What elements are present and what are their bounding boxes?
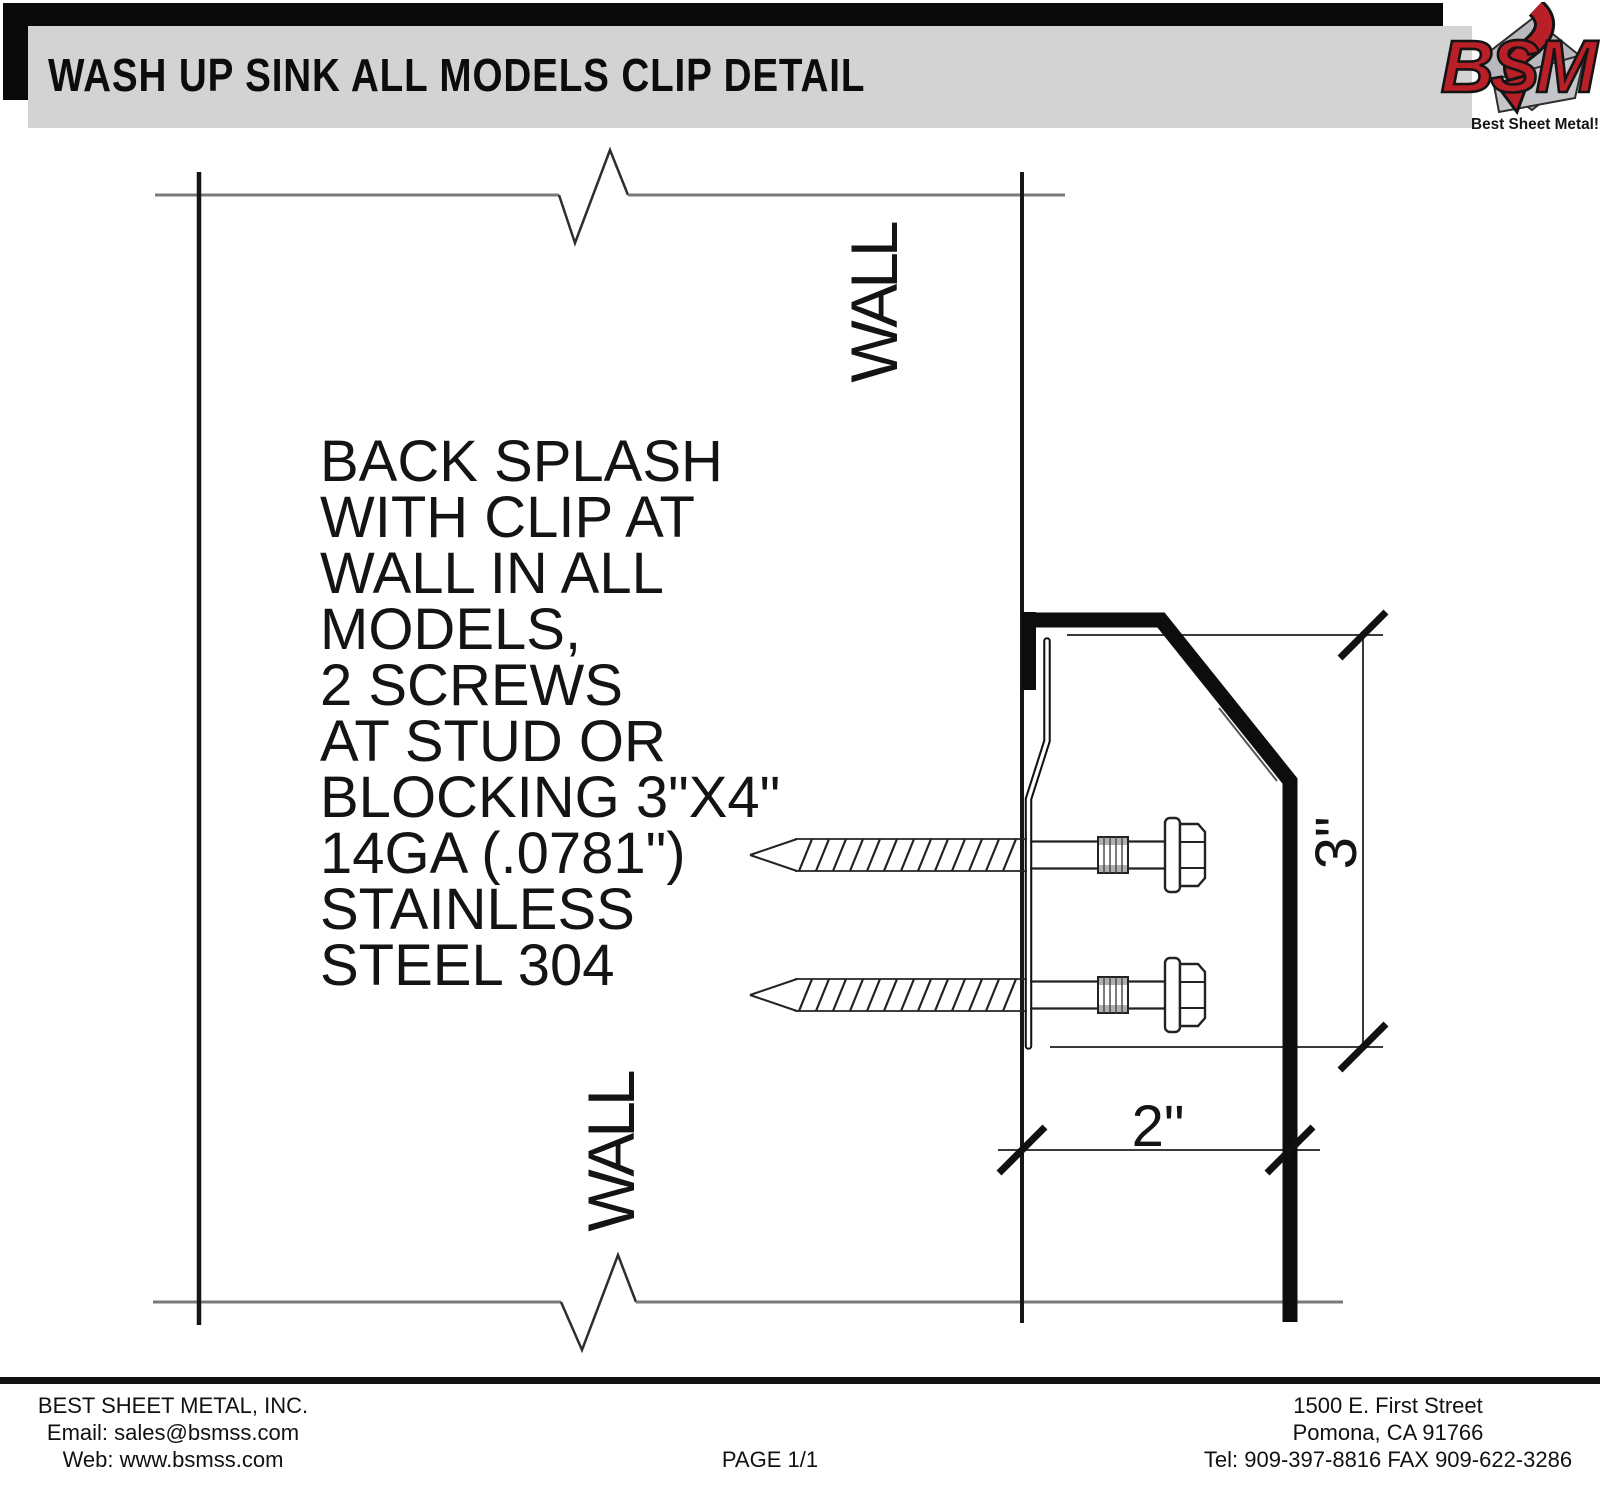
dimension-ticks: [999, 612, 1386, 1173]
logo-tagline: Best Sheet Metal!: [1471, 116, 1599, 133]
company-email: Email: sales@bsmss.com: [0, 1419, 346, 1446]
mounting-clip: [1029, 641, 1048, 1046]
header-title-bar: WASH UP SINK ALL MODELS CLIP DETAIL: [28, 26, 1472, 128]
address-street: 1500 E. First Street: [1188, 1392, 1588, 1419]
wall-label-top: WALL: [837, 222, 911, 383]
footer-rule: [0, 1377, 1600, 1384]
wall-break-line-top: [155, 150, 1065, 243]
dimension-height-label: 3": [1304, 817, 1369, 870]
address-city: Pomona, CA 91766: [1188, 1419, 1588, 1446]
logo-acronym: BSM: [1441, 25, 1599, 108]
backsplash-profile: [1022, 620, 1290, 1322]
company-name: BEST SHEET METAL, INC.: [0, 1392, 346, 1419]
phone-fax: Tel: 909-397-8816 FAX 909-622-3286: [1188, 1446, 1588, 1473]
annotation-note: BACK SPLASH WITH CLIP AT WALL IN ALL MOD…: [320, 434, 880, 994]
wall-break-line-bottom: [153, 1255, 1343, 1350]
footer-company-block: BEST SHEET METAL, INC. Email: sales@bsms…: [0, 1392, 346, 1473]
footer-address-block: 1500 E. First Street Pomona, CA 91766 Te…: [1188, 1392, 1588, 1473]
dimension-lines: [998, 635, 1383, 1150]
page-number: PAGE 1/1: [690, 1446, 850, 1473]
drawing-sheet: WASH UP SINK ALL MODELS CLIP DETAIL BSM …: [0, 0, 1600, 1492]
wall-label-bottom: WALL: [574, 1071, 648, 1232]
page-title: WASH UP SINK ALL MODELS CLIP DETAIL: [48, 48, 865, 102]
company-logo: BSM Best Sheet Metal!: [1433, 2, 1600, 135]
dimension-depth-label: 2": [1132, 1094, 1185, 1159]
company-web: Web: www.bsmss.com: [0, 1446, 346, 1473]
